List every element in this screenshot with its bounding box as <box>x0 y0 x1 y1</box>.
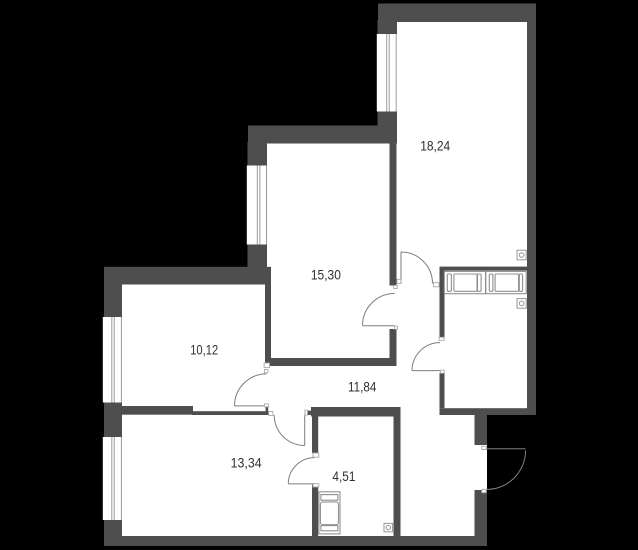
svg-text:13,34: 13,34 <box>231 455 262 471</box>
svg-text:18,24: 18,24 <box>420 138 450 154</box>
svg-text:10,12: 10,12 <box>190 342 218 358</box>
svg-text:15,30: 15,30 <box>311 267 341 283</box>
svg-text:11,84: 11,84 <box>348 378 377 394</box>
svg-text:4,51: 4,51 <box>332 468 355 484</box>
